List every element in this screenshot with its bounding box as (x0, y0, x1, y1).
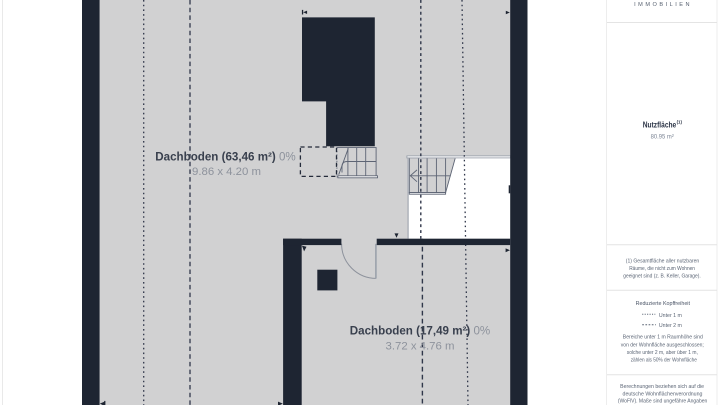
svg-text:Dachboden (63,46 m²) 0%: Dachboden (63,46 m²) 0% (155, 150, 295, 163)
svg-text:Berechnungen beziehen sich auf: Berechnungen beziehen sich auf die (620, 384, 705, 390)
svg-text:Dachboden (17,49 m²) 0%: Dachboden (17,49 m²) 0% (350, 324, 490, 337)
svg-text:von der Wohnfläche ausgeschlos: von der Wohnfläche ausgeschlossen; (621, 342, 704, 348)
svg-text:Bereiche unter 1 m Raumhöhe si: Bereiche unter 1 m Raumhöhe sind (623, 334, 703, 340)
svg-text:Räume, die nicht zum Wohnen: Räume, die nicht zum Wohnen (629, 266, 695, 272)
svg-text:Unter 1 m: Unter 1 m (659, 313, 682, 319)
svg-text:(WoFlV). Maße sind ungefähre A: (WoFlV). Maße sind ungefähre Angaben (618, 398, 707, 404)
svg-text:9.86 x 4.20 m: 9.86 x 4.20 m (192, 166, 261, 178)
svg-text:IMMOBILIEN: IMMOBILIEN (634, 2, 692, 8)
svg-text:3.72 x 4.76 m: 3.72 x 4.76 m (385, 340, 454, 352)
svg-text:Nutzfläche: Nutzfläche (643, 121, 677, 130)
svg-text:zählen als 50% der Wohnfläche: zählen als 50% der Wohnfläche (631, 358, 698, 364)
svg-text:solche unter 2 m, aber über 1: solche unter 2 m, aber über 1 m, (627, 350, 698, 356)
svg-text:geeignet sind (z. B. Keller, G: geeignet sind (z. B. Keller, Garage). (623, 273, 701, 279)
svg-text:Reduzierte Kopffreiheit: Reduzierte Kopffreiheit (636, 301, 691, 307)
svg-text:(1) Gesamtfläche aller nutzbar: (1) Gesamtfläche aller nutzbaren (626, 259, 699, 265)
svg-text:(1): (1) (677, 119, 683, 124)
svg-text:80.95 m²: 80.95 m² (651, 134, 675, 141)
svg-text:Unter 2 m: Unter 2 m (659, 323, 682, 329)
svg-text:deutsche Wohnflächenverordnung: deutsche Wohnflächenverordnung (623, 391, 703, 397)
